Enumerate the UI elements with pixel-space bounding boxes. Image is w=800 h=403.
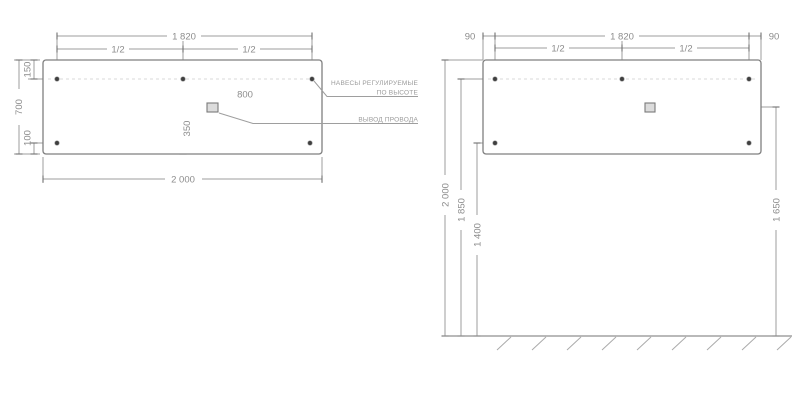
dim-hangers-height: 1 850 <box>456 198 467 222</box>
dim-edge-left: 90 <box>465 32 476 43</box>
dim-height: 700 <box>14 99 25 115</box>
lower-mount-dot <box>493 141 498 146</box>
dim-half-right-installed: 1/2 <box>679 44 692 55</box>
hanger-dot <box>181 77 186 82</box>
lower-mount-dot <box>55 141 60 146</box>
hanger-dot <box>747 77 752 82</box>
floor-hatching <box>497 337 791 350</box>
dim-half-left-installed: 1/2 <box>551 44 564 55</box>
wire-outlet-square <box>207 103 218 112</box>
hanger-dot <box>55 77 60 82</box>
hanger-dot <box>310 77 315 82</box>
dim-mount-span-front: 1 820 <box>172 32 196 43</box>
label-hangers-line1: НАВЕСЫ РЕГУЛИРУЕМЫЕ <box>331 80 418 87</box>
dim-outlet-from-right: 800 <box>237 90 253 101</box>
dim-edge-right: 90 <box>769 32 780 43</box>
dim-top-offset: 150 <box>22 62 33 78</box>
dim-mirror-top-height: 2 000 <box>440 183 451 207</box>
wire-outlet-square <box>645 103 655 112</box>
hanger-dot <box>620 77 625 82</box>
lower-mount-dot <box>308 141 313 146</box>
dim-mount-span-installed: 1 820 <box>610 32 634 43</box>
front-view: 1 820 1/2 1/2 150 700 100 800 350 2 000 … <box>12 31 418 186</box>
dim-half-left-front: 1/2 <box>111 45 124 56</box>
dim-outlet-height: 1 650 <box>771 198 782 222</box>
dim-half-right-front: 1/2 <box>242 45 255 56</box>
dim-bottom-offset: 100 <box>22 130 33 146</box>
dim-lower-mounts-height: 1 400 <box>472 223 483 247</box>
hanger-dot <box>493 77 498 82</box>
installation-view: 90 1 820 90 1/2 1/2 2 000 1 850 1 400 1 … <box>439 31 793 350</box>
label-wire-outlet: ВЫВОД ПРОВОДА <box>358 117 418 124</box>
label-hangers-line2: ПО ВЫСОТЕ <box>377 90 419 97</box>
mirror-dimension-drawing: 1 820 1/2 1/2 150 700 100 800 350 2 000 … <box>0 0 800 403</box>
lower-mount-dot <box>747 141 752 146</box>
mirror-panel-installed <box>483 60 761 154</box>
technical-drawing-canvas: 1 820 1/2 1/2 150 700 100 800 350 2 000 … <box>0 0 800 403</box>
dim-outlet-from-bottom: 350 <box>182 121 193 137</box>
dim-total-width: 2 000 <box>171 175 195 186</box>
